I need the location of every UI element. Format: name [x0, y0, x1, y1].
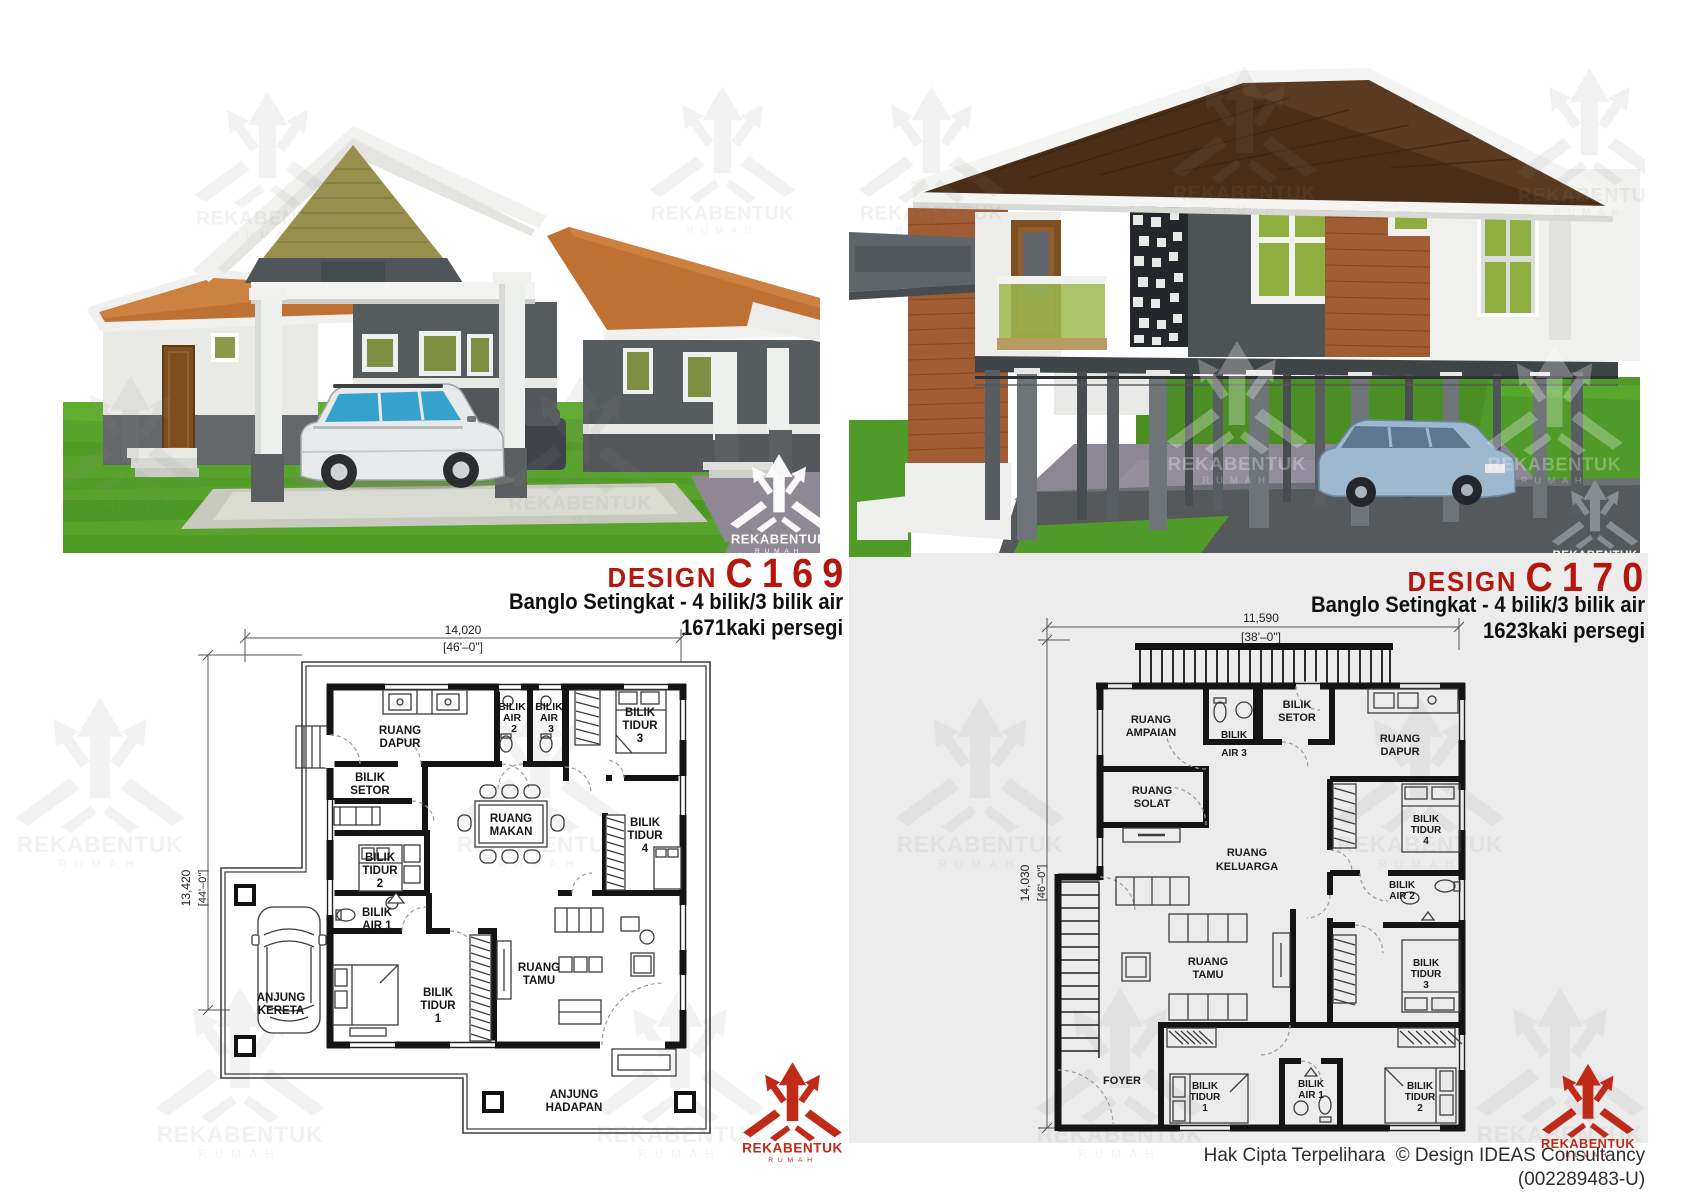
svg-text:AMPAIAN: AMPAIAN: [1126, 727, 1177, 739]
svg-text:[46'–0"]: [46'–0"]: [443, 640, 483, 654]
svg-text:FOYER: FOYER: [1103, 1075, 1141, 1087]
svg-text:[38'–0"]: [38'–0"]: [1241, 630, 1281, 644]
svg-text:RUANG: RUANG: [490, 813, 532, 825]
svg-text:1: 1: [1202, 1103, 1208, 1114]
svg-text:TIDUR: TIDUR: [1190, 1092, 1221, 1103]
svg-text:BILIK: BILIK: [630, 817, 661, 829]
svg-text:3: 3: [548, 723, 554, 735]
svg-text:13,420: 13,420: [179, 869, 193, 906]
svg-text:TIDUR: TIDUR: [1411, 825, 1442, 836]
svg-text:BILIK: BILIK: [423, 987, 454, 999]
svg-text:14,020: 14,020: [445, 623, 482, 637]
svg-text:TAMU: TAMU: [523, 975, 555, 987]
svg-text:2: 2: [377, 878, 383, 890]
svg-text:AIR 1: AIR 1: [1298, 1090, 1324, 1101]
svg-text:4: 4: [642, 843, 649, 855]
svg-text:BILIK: BILIK: [1192, 1081, 1219, 1092]
svg-text:RUANG: RUANG: [1380, 733, 1420, 745]
svg-text:AIR 3: AIR 3: [1221, 748, 1247, 759]
svg-text:TIDUR: TIDUR: [420, 1000, 456, 1012]
svg-text:[46'–0"]: [46'–0"]: [1036, 865, 1048, 902]
svg-text:HADAPAN: HADAPAN: [546, 1102, 603, 1114]
svg-text:DAPUR: DAPUR: [1380, 746, 1419, 758]
svg-text:11,590: 11,590: [1243, 611, 1279, 625]
svg-text:RUANG: RUANG: [1227, 847, 1267, 859]
svg-text:RUANG: RUANG: [1188, 956, 1228, 968]
svg-text:3: 3: [637, 733, 643, 745]
svg-text:KERETA: KERETA: [258, 1005, 304, 1017]
svg-text:RUANG: RUANG: [1132, 785, 1172, 797]
svg-text:SETOR: SETOR: [350, 785, 390, 797]
svg-text:ANJUNG: ANJUNG: [257, 992, 306, 1004]
svg-text:KELUARGA: KELUARGA: [1216, 861, 1278, 873]
svg-text:AIR 2: AIR 2: [1389, 891, 1415, 902]
svg-text:BILIK: BILIK: [625, 707, 656, 719]
svg-text:ANJUNG: ANJUNG: [550, 1089, 599, 1101]
svg-text:MAKAN: MAKAN: [490, 826, 533, 838]
svg-text:SETOR: SETOR: [1278, 712, 1316, 724]
svg-text:RUMAH: RUMAH: [768, 1157, 817, 1164]
svg-text:TIDUR: TIDUR: [1411, 969, 1442, 980]
svg-text:BILIK: BILIK: [1298, 1079, 1325, 1090]
svg-text:BILIK: BILIK: [1407, 1081, 1434, 1092]
svg-text:RUANG: RUANG: [1131, 714, 1171, 726]
svg-text:RUANG: RUANG: [379, 725, 421, 737]
svg-text:BILIK: BILIK: [1413, 958, 1440, 969]
svg-text:TIDUR: TIDUR: [627, 830, 663, 842]
svg-text:BILIK: BILIK: [1413, 814, 1440, 825]
svg-text:TAMU: TAMU: [1193, 969, 1224, 981]
svg-text:REKABENTUK: REKABENTUK: [742, 1141, 843, 1156]
svg-text:RUANG: RUANG: [518, 962, 560, 974]
svg-text:2: 2: [511, 723, 517, 735]
svg-text:DAPUR: DAPUR: [380, 738, 422, 750]
svg-text:1: 1: [435, 1013, 442, 1025]
svg-text:2: 2: [1417, 1103, 1423, 1114]
svg-text:BILIK: BILIK: [355, 772, 386, 784]
svg-text:TIDUR: TIDUR: [362, 865, 398, 877]
svg-text:BILIK: BILIK: [362, 907, 393, 919]
svg-text:BILIK: BILIK: [365, 852, 396, 864]
svg-text:BILIK: BILIK: [1221, 730, 1248, 741]
svg-text:TIDUR: TIDUR: [622, 720, 658, 732]
svg-text:14,030: 14,030: [1020, 864, 1032, 901]
svg-text:AIR 1: AIR 1: [362, 920, 392, 932]
svg-text:3: 3: [1423, 980, 1429, 991]
svg-text:SOLAT: SOLAT: [1134, 798, 1171, 810]
svg-text:TIDUR: TIDUR: [1405, 1092, 1436, 1103]
svg-text:BILIK: BILIK: [1389, 880, 1416, 891]
svg-text:[44'–0"]: [44'–0"]: [197, 870, 209, 907]
svg-text:BILIK: BILIK: [1283, 699, 1312, 711]
svg-text:4: 4: [1423, 836, 1429, 847]
